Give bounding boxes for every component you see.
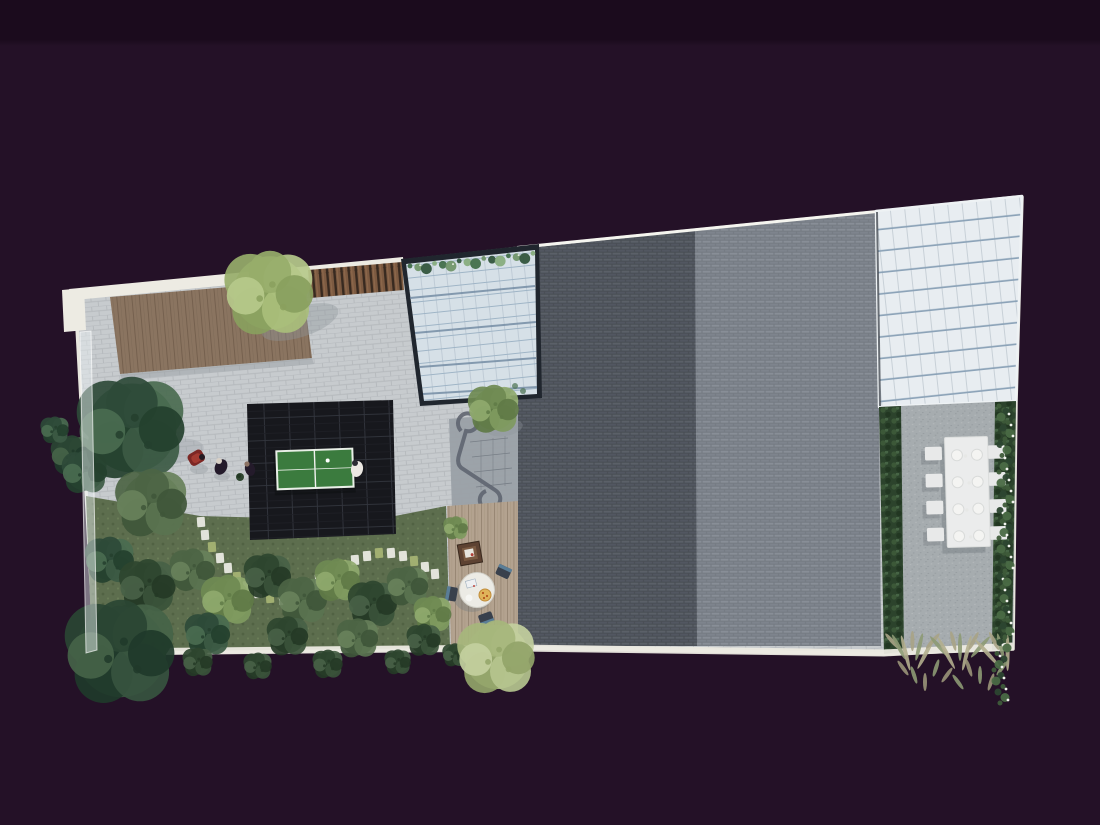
tree-canopy-speckle xyxy=(257,662,260,665)
tree-canopy-speckle xyxy=(303,594,307,598)
skylight-vine-flower xyxy=(452,263,454,265)
tree-canopy-speckle xyxy=(288,631,291,634)
tree-canopy-speckle xyxy=(147,579,151,583)
dinner-plate xyxy=(953,504,964,515)
hedge-flower xyxy=(999,655,1002,658)
table-dot xyxy=(473,585,475,587)
skylight-vine-blob xyxy=(512,383,518,389)
plan-svg xyxy=(0,0,1100,825)
dining-chair xyxy=(926,501,943,515)
tree-canopy-speckle xyxy=(197,658,200,661)
flowering-hedge-blob xyxy=(997,611,1006,620)
hedge-flower xyxy=(1010,424,1013,427)
flowering-hedge-blob xyxy=(995,651,1000,656)
tree-canopy xyxy=(337,618,379,657)
grass-tuft xyxy=(958,633,962,661)
tree-canopy-speckle xyxy=(141,505,146,510)
flowering-hedge-blob xyxy=(997,413,1006,422)
site-plan-render xyxy=(0,0,1100,825)
tree-canopy-speckle xyxy=(104,655,112,663)
flowering-hedge-blob xyxy=(1000,585,1005,590)
skylight-vine-blob xyxy=(408,264,413,269)
tree-canopy xyxy=(313,650,343,679)
tree-canopy-speckle xyxy=(256,295,263,302)
tree-canopy-speckle xyxy=(220,601,224,605)
flowering-hedge-blob xyxy=(997,536,1002,541)
flowering-hedge-blob xyxy=(997,470,1002,475)
tree-canopy-speckle xyxy=(103,561,107,565)
skylight-vine-blob xyxy=(439,261,447,269)
tree-canopy xyxy=(115,469,187,537)
dinner-plate xyxy=(952,477,963,488)
flowering-hedge-blob xyxy=(1003,446,1012,455)
tree-canopy-speckle xyxy=(419,641,422,644)
stepping-stone xyxy=(431,569,440,580)
dining-chair xyxy=(927,528,944,542)
tree-canopy xyxy=(267,616,309,655)
tree-canopy-speckle xyxy=(120,638,128,646)
table-tennis-table xyxy=(273,449,355,496)
tree-canopy-speckle xyxy=(269,281,276,288)
tree-canopy-speckle xyxy=(58,433,61,436)
hedge-flower xyxy=(1004,457,1007,460)
flowering-hedge-blob xyxy=(997,602,1002,607)
tree-canopy-speckle xyxy=(234,606,238,610)
tree-canopy-speckle xyxy=(506,666,512,672)
pizza xyxy=(479,589,491,601)
tree-canopy-speckle xyxy=(133,665,141,673)
tree-canopy-speckle xyxy=(72,450,75,453)
tree-canopy-speckle xyxy=(363,643,366,646)
skylight-vine-blob xyxy=(513,253,521,261)
flowering-hedge-blob xyxy=(1003,512,1012,521)
grass-tuft xyxy=(978,666,982,684)
tree-canopy xyxy=(65,600,175,703)
tree-canopy-speckle xyxy=(352,639,355,642)
tree-canopy-speckle xyxy=(186,571,189,574)
flowering-hedge-blob xyxy=(992,668,997,673)
skylight-vine-blob xyxy=(421,263,432,274)
tree-canopy-speckle xyxy=(373,598,377,602)
tree-canopy-speckle xyxy=(253,666,256,669)
hedge-flower xyxy=(1012,501,1015,504)
tree-canopy-speckle xyxy=(393,662,396,665)
flowering-hedge-blob xyxy=(1003,644,1012,653)
flowering-hedge-blob xyxy=(1003,578,1012,587)
hedge-flower xyxy=(1006,534,1009,537)
tree-canopy-speckle xyxy=(423,635,426,638)
tree-canopy-speckle xyxy=(198,576,201,579)
crate-contents xyxy=(464,548,474,557)
tree-canopy-speckle xyxy=(338,574,341,577)
skylight-vine-blob xyxy=(464,258,472,266)
hedge-flower xyxy=(1010,556,1013,559)
potted-plant xyxy=(236,473,244,481)
tree-canopy-speckle xyxy=(201,635,204,638)
flowering-hedge-blob xyxy=(1006,618,1011,623)
skylight-vine-blob xyxy=(519,253,530,264)
flowering-hedge-blob xyxy=(998,701,1003,706)
flowering-hedge-blob xyxy=(997,479,1006,488)
center-skylight xyxy=(401,244,542,406)
tree-canopy-speckle xyxy=(54,426,57,429)
skylight-vine-blob xyxy=(531,251,536,256)
tree-canopy xyxy=(457,620,535,693)
tree-canopy-speckle xyxy=(50,430,53,433)
flowering-hedge-blob xyxy=(1003,635,1008,640)
tree-canopy-speckle xyxy=(227,593,231,597)
flowering-hedge-blob xyxy=(997,404,1002,409)
flowering-hedge-blob xyxy=(995,689,1002,696)
flowering-hedge-blob xyxy=(997,545,1006,554)
stepping-stone xyxy=(216,553,225,564)
flowering-hedge-blob xyxy=(992,677,1001,686)
tree-canopy-speckle xyxy=(331,667,334,670)
hedge-flower xyxy=(1004,523,1007,526)
tree-canopy-speckle xyxy=(496,647,502,653)
stepping-stone xyxy=(208,542,217,553)
hedge-flower xyxy=(1008,611,1011,614)
stepping-stone xyxy=(375,548,384,559)
tree-canopy-speckle xyxy=(379,610,383,614)
skylight-vine-blob xyxy=(495,256,506,267)
light-tiled-roof xyxy=(695,212,881,646)
small-plate xyxy=(466,595,473,602)
tree-canopy-speckle xyxy=(494,402,498,406)
tree-canopy-speckle xyxy=(408,581,411,584)
hedge-flower xyxy=(1012,435,1015,438)
tree-canopy xyxy=(40,417,68,444)
tree-canopy xyxy=(183,648,213,677)
tree-canopy-speckle xyxy=(485,659,491,665)
tree-canopy-speckle xyxy=(273,582,277,586)
tree-canopy-speckle xyxy=(500,415,504,419)
parapet-step xyxy=(62,288,86,332)
tree-canopy-speckle xyxy=(78,473,81,476)
flowering-hedge-blob xyxy=(1000,425,1007,432)
tree-canopy xyxy=(384,649,411,674)
tree-canopy-speckle xyxy=(428,644,431,647)
hedge-flower xyxy=(1006,468,1009,471)
flowering-hedge-blob xyxy=(1006,486,1011,491)
hedge-flower xyxy=(1012,567,1015,570)
skylight-vine-blob xyxy=(432,261,437,266)
tree-canopy-speckle xyxy=(397,658,400,661)
tree-canopy-speckle xyxy=(139,588,143,592)
grass-tuft xyxy=(951,674,965,691)
flowering-hedge-blob xyxy=(1000,557,1007,564)
dinner-plate xyxy=(953,531,964,542)
tree-canopy-speckle xyxy=(282,637,285,640)
tree-canopy-speckle xyxy=(433,609,436,612)
pizza-topping xyxy=(482,592,484,594)
flowering-hedge-blob xyxy=(1000,491,1007,498)
tree-canopy-speckle xyxy=(280,304,287,311)
tree-canopy-speckle xyxy=(427,615,430,618)
tree-canopy xyxy=(243,653,271,680)
grass-tuft xyxy=(910,631,914,651)
tree-canopy-speckle xyxy=(309,606,313,610)
tree-canopy-speckle xyxy=(213,640,216,643)
tree-canopy xyxy=(443,516,468,539)
stepping-stone xyxy=(363,551,372,562)
skylight-vine-blob xyxy=(520,388,526,394)
tree-canopy-speckle xyxy=(154,593,158,597)
tree-canopy xyxy=(224,251,313,335)
skylight-vine-flower xyxy=(518,254,520,256)
flowering-hedge-blob xyxy=(1003,503,1008,508)
hedge-flower xyxy=(1010,490,1013,493)
grass-tuft xyxy=(1006,635,1010,671)
grass-tuft xyxy=(923,673,927,691)
dinner-plate xyxy=(973,503,984,514)
skylight-vine-blob xyxy=(470,258,481,269)
tree-canopy-speckle xyxy=(208,628,211,631)
player-head xyxy=(352,460,358,466)
tree-canopy-speckle xyxy=(323,664,326,667)
stepping-stone xyxy=(197,517,206,528)
tree-canopy-speckle xyxy=(131,414,139,422)
hedge-flower xyxy=(1004,589,1007,592)
stepping-stone xyxy=(399,551,408,562)
tree-canopy xyxy=(407,624,441,656)
player-head xyxy=(244,461,249,466)
tree-canopy-speckle xyxy=(193,662,196,665)
flowering-hedge-blob xyxy=(1006,552,1011,557)
tree-canopy-speckle xyxy=(261,577,265,581)
flowering-hedge-blob xyxy=(1003,569,1008,574)
tree-canopy xyxy=(185,612,230,655)
grass-tuft xyxy=(940,667,954,684)
tree-canopy-speckle xyxy=(331,581,334,584)
tree-canopy-speckle xyxy=(193,564,196,567)
hedge-flower xyxy=(1007,699,1010,702)
tree-canopy-speckle xyxy=(151,494,156,499)
tree-canopy-speckle xyxy=(296,601,300,605)
hedge-flower xyxy=(1008,545,1011,548)
dining-chair xyxy=(925,474,942,488)
tree-canopy-speckle xyxy=(366,605,370,609)
tree-canopy-speckle xyxy=(144,441,152,449)
stepping-stone xyxy=(387,548,396,559)
tree-canopy-speckle xyxy=(201,665,204,668)
hedge-flower xyxy=(1012,633,1015,636)
person-head xyxy=(199,454,205,460)
tree-canopy-speckle xyxy=(160,512,165,517)
hedge-flower xyxy=(1001,666,1004,669)
tree-canopy-speckle xyxy=(268,570,272,574)
tree-canopy-speckle xyxy=(110,554,114,558)
flowering-hedge-blob xyxy=(1001,684,1006,689)
skylight-vine-blob xyxy=(414,263,422,271)
grass-tuft xyxy=(909,666,918,684)
tree-canopy-speckle xyxy=(455,524,458,527)
skylight-vine-blob xyxy=(457,259,462,264)
flowering-hedge-blob xyxy=(1000,453,1005,458)
tree-canopy xyxy=(468,385,519,433)
flowering-hedge-blob xyxy=(1000,519,1005,524)
tree-canopy-speckle xyxy=(413,591,416,594)
skylight-vine-blob xyxy=(488,256,496,264)
grass-tuft xyxy=(931,659,940,677)
dinner-plate xyxy=(972,476,983,487)
tree-canopy-speckle xyxy=(261,669,264,672)
tree-canopy-speckle xyxy=(451,655,454,658)
tree-canopy-speckle xyxy=(116,566,120,570)
hedge-flower xyxy=(1006,600,1009,603)
dinner-plate xyxy=(951,450,962,461)
tree-canopy-speckle xyxy=(116,431,124,439)
hedge-flower xyxy=(1003,677,1006,680)
hedge-flower xyxy=(1008,413,1011,416)
skylight-vine-flower xyxy=(485,255,487,257)
tree-canopy-speckle xyxy=(458,530,461,533)
hedge-flower xyxy=(1008,479,1011,482)
round-cafe-table xyxy=(460,573,495,608)
pizza-topping xyxy=(486,595,488,597)
stepping-stone xyxy=(224,563,233,574)
tree-canopy-speckle xyxy=(454,651,457,654)
flowering-hedge-blob xyxy=(1006,420,1011,425)
tree-canopy-speckle xyxy=(327,660,330,663)
storage-crate xyxy=(457,541,482,566)
skylight-vine-blob xyxy=(506,253,511,258)
grass-tuft xyxy=(964,659,973,677)
person-head xyxy=(216,458,222,464)
tree-canopy-speckle xyxy=(402,587,405,590)
right-skylight xyxy=(876,196,1022,407)
flowering-hedge-blob xyxy=(1003,437,1008,442)
hedge-flower xyxy=(1005,688,1008,691)
skylight-vine-blob xyxy=(446,261,457,272)
tree-canopy-speckle xyxy=(343,586,346,589)
tree-canopy-speckle xyxy=(358,633,361,636)
dinner-plate xyxy=(971,449,982,460)
tree-canopy-speckle xyxy=(437,619,440,622)
skylight-vine-flower xyxy=(419,264,421,266)
tree-canopy-speckle xyxy=(400,665,403,668)
pizza-topping xyxy=(483,597,485,599)
tree-canopy-speckle xyxy=(452,528,455,531)
dining-chair xyxy=(925,447,942,461)
tree-canopy-speckle xyxy=(293,641,296,644)
hedge-flower xyxy=(1010,622,1013,625)
stepping-stone xyxy=(201,530,210,541)
dinner-plate xyxy=(973,530,984,541)
tree-canopy-speckle xyxy=(486,410,490,414)
flowering-hedge-blob xyxy=(1000,623,1007,630)
stepping-stone xyxy=(410,556,419,567)
